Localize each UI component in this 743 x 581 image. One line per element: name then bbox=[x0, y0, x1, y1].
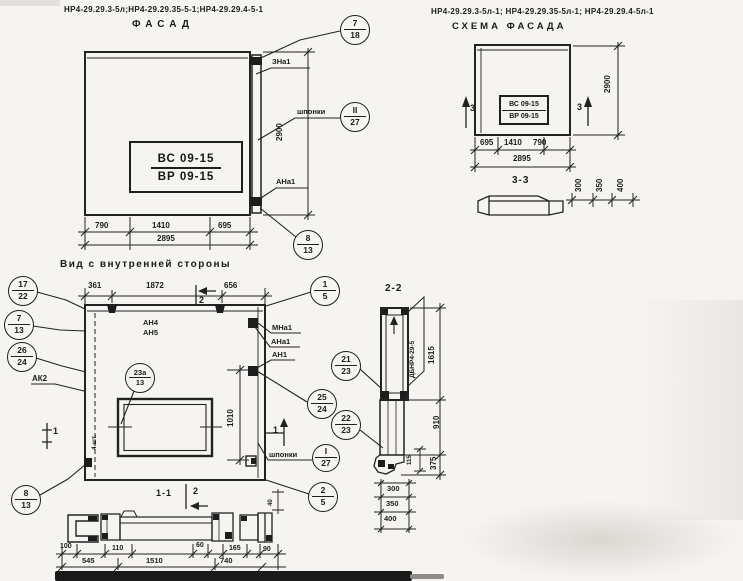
callout-facade-top: 7 18 bbox=[340, 15, 370, 45]
scheme-dim-total: 2895 bbox=[513, 155, 531, 163]
inner-view-dimension-lines bbox=[78, 288, 272, 465]
callout-2-5: 2 5 bbox=[308, 482, 338, 512]
callout-17-22: 17 22 bbox=[8, 276, 38, 306]
inner-label-ana1: АНа1 bbox=[271, 338, 290, 346]
callout-den: 5 bbox=[321, 497, 326, 508]
section-1-1-dim-small: 40 bbox=[268, 499, 274, 506]
facade-label-ana1: АНа1 bbox=[276, 178, 295, 186]
scan-edge-strip bbox=[55, 571, 412, 581]
callout-8-13: 8 13 bbox=[11, 485, 41, 515]
section-3-3-dim1: 300 bbox=[575, 179, 583, 192]
callout-num: 7 bbox=[8, 314, 30, 325]
callout-den: 5 bbox=[323, 291, 328, 302]
inner-note: 4 шт. bbox=[92, 435, 99, 450]
section-2-2-dim-b2: 350 bbox=[386, 500, 399, 508]
facade-dim-w3: 695 bbox=[218, 222, 231, 230]
callout-den: 13 bbox=[21, 500, 30, 511]
facade-dim-w2: 1410 bbox=[152, 222, 170, 230]
callout-den: 13 bbox=[14, 325, 23, 336]
callout-num: II bbox=[344, 106, 366, 117]
section-1-1-title: 1-1 bbox=[156, 489, 172, 498]
inner-dim-t3: 656 bbox=[224, 282, 237, 290]
scheme-codes: НР4-29.29.3-5л-1; НР4-29.29.35-5л-1; НР4… bbox=[431, 8, 654, 16]
callout-num: 26 bbox=[11, 346, 33, 357]
scheme-stamp: ВС 09-15 ВР 09-15 bbox=[499, 95, 549, 125]
callout-num: 1 bbox=[314, 280, 336, 291]
callout-den: 23 bbox=[341, 425, 350, 436]
section-1-1-dim-s5: 90 bbox=[263, 546, 271, 553]
facade-label-shponki: шпонки bbox=[297, 108, 325, 116]
facade-stamp-line2: ВР 09-15 bbox=[158, 169, 215, 183]
facade-leaders bbox=[252, 31, 340, 237]
callout-num: 2 bbox=[312, 486, 334, 497]
inner-label-an4: АН4 bbox=[143, 319, 158, 327]
section-2-2-panel-label: ДБНР4-29-5 bbox=[410, 341, 417, 378]
section-1-1-dim-s3: 60 bbox=[196, 542, 204, 549]
scan-shading-right bbox=[640, 300, 743, 520]
section-1-1-dim-b1: 545 bbox=[82, 557, 95, 565]
section-2-2-title: 2-2 bbox=[385, 284, 402, 294]
callout-num: 22 bbox=[335, 414, 357, 425]
facade-dim-height: 2900 bbox=[276, 123, 284, 141]
callout-facade-bottom: 8 13 bbox=[293, 230, 323, 260]
callout-den: 24 bbox=[17, 357, 26, 368]
callout-26-24: 26 24 bbox=[7, 342, 37, 372]
facade-dim-total: 2895 bbox=[157, 235, 175, 243]
section-3-3-profile bbox=[478, 193, 640, 215]
callout-num: 8 bbox=[297, 234, 319, 245]
linework-layer bbox=[0, 0, 743, 581]
inner-label-ak2: АК2 bbox=[32, 375, 47, 383]
section-3-3-dim3: 400 bbox=[617, 179, 625, 192]
callout-num: 25 bbox=[311, 393, 333, 404]
callout-den: 23 bbox=[341, 366, 350, 377]
scheme-dim-w1: 695 bbox=[480, 139, 493, 147]
facade-label-zna1: ЗНа1 bbox=[272, 58, 290, 66]
callout-den: 24 bbox=[317, 404, 326, 415]
callout-den: 22 bbox=[18, 291, 27, 302]
scheme-dim-w3: 790 bbox=[533, 139, 546, 147]
section-2-2-dim-b3: 400 bbox=[384, 515, 397, 523]
section-1-1-profile bbox=[68, 489, 284, 542]
drawing-sheet: НР4-29.29.3-5л;НР4-29.29.35-5-1;НР4-29.2… bbox=[0, 0, 743, 581]
section-3-3-title: 3-3 bbox=[512, 176, 529, 186]
scheme-stamp-line2: ВР 09-15 bbox=[509, 111, 539, 120]
inner-dim-t2: 1872 bbox=[146, 282, 164, 290]
facade-stamp-line1: ВС 09-15 bbox=[151, 152, 222, 169]
inner-view-title: Вид с внутренней стороны bbox=[60, 260, 231, 270]
inner-section2-marker-bottom: 2 bbox=[193, 487, 198, 496]
scan-mark-top-left bbox=[0, 0, 60, 6]
section-3-3-dim2: 350 bbox=[596, 179, 604, 192]
callout-num: 7 bbox=[344, 19, 366, 30]
section-1-1-dim-b2: 1510 bbox=[146, 557, 163, 565]
section-1-1-dim-b3: 740 bbox=[220, 557, 233, 565]
callout-1-5: 1 5 bbox=[310, 276, 340, 306]
inner-dim-window-height: 1010 bbox=[227, 409, 235, 427]
inner-label-an1: АН1 bbox=[272, 351, 287, 359]
callout-25-24: 25 24 bbox=[307, 389, 337, 419]
facade-codes: НР4-29.29.3-5л;НР4-29.29.35-5-1;НР4-29.2… bbox=[64, 6, 263, 14]
section-2-2-dim-b1: 300 bbox=[387, 485, 400, 493]
callout-7-13: 7 13 bbox=[4, 310, 34, 340]
scan-edge-fade bbox=[410, 574, 444, 579]
callout-facade-shponki: II 27 bbox=[340, 102, 370, 132]
callout-den: 27 bbox=[321, 458, 330, 469]
callout-23a-13: 23а 13 bbox=[125, 363, 155, 393]
scheme-title: СХЕМА ФАСАДА bbox=[452, 22, 567, 32]
inner-section2-marker-top: 2 bbox=[199, 296, 204, 305]
scheme-section-marker-left: 3 bbox=[470, 104, 475, 113]
callout-I-27: I 27 bbox=[312, 444, 340, 472]
inner-dim-t1: 361 bbox=[88, 282, 101, 290]
callout-22-23: 22 23 bbox=[331, 410, 361, 440]
inner-view-panel bbox=[84, 305, 265, 480]
callout-den: 13 bbox=[303, 245, 312, 256]
scheme-dim-w2: 1410 bbox=[504, 139, 522, 147]
callout-den: 18 bbox=[350, 30, 359, 41]
facade-dim-w1: 790 bbox=[95, 222, 108, 230]
inner-view-window bbox=[108, 399, 222, 456]
scheme-section-marker-right: 3 bbox=[577, 103, 582, 112]
inner-label-mna1: МНа1 bbox=[272, 324, 292, 332]
callout-num: 8 bbox=[15, 489, 37, 500]
inner-section1-marker-right: 1 bbox=[273, 426, 278, 435]
inner-label-an5: АН5 bbox=[143, 329, 158, 337]
scheme-stamp-line1: ВС 09-15 bbox=[502, 100, 546, 111]
section-1-1-dim-s4: 165 bbox=[229, 545, 241, 552]
section-1-1-dim-s1: 100 bbox=[60, 543, 72, 550]
callout-num: 21 bbox=[335, 355, 357, 366]
section-2-2-dim-small: 115 bbox=[407, 455, 413, 465]
callout-den: 27 bbox=[350, 117, 359, 128]
scheme-dim-height: 2900 bbox=[604, 75, 612, 93]
callout-num: 17 bbox=[12, 280, 34, 291]
section-2-2-dim-h2: 910 bbox=[433, 416, 441, 429]
callout-num: 23а bbox=[129, 369, 151, 378]
callout-num: I bbox=[315, 447, 336, 458]
callout-21-23: 21 23 bbox=[331, 351, 361, 381]
inner-section1-marker-left: 1 bbox=[53, 427, 58, 436]
facade-title: ФАСАД bbox=[132, 20, 194, 30]
section-1-1-dim-s2: 110 bbox=[112, 545, 123, 552]
inner-label-shponki: шпонки bbox=[269, 451, 297, 459]
section-2-2-dim-h1: 1615 bbox=[428, 346, 436, 364]
facade-stamp: ВС 09-15 ВР 09-15 bbox=[129, 141, 243, 193]
section-2-2-dim-h3: 375 bbox=[430, 457, 438, 470]
callout-den: 13 bbox=[136, 378, 144, 387]
